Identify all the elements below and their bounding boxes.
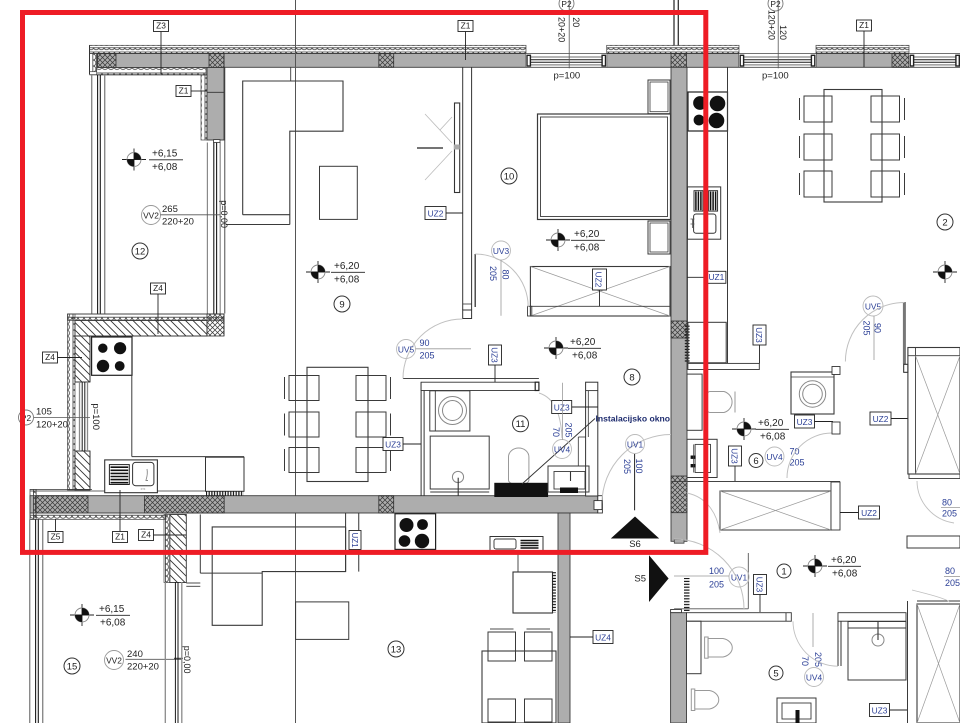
svg-text:p=100: p=100 — [762, 71, 789, 82]
svg-text:P2: P2 — [770, 0, 781, 9]
svg-text:13: 13 — [391, 644, 402, 655]
svg-text:120: 120 — [778, 25, 788, 40]
svg-text:220+20: 220+20 — [162, 217, 194, 228]
svg-text:UV3: UV3 — [493, 246, 510, 256]
svg-text:205: 205 — [563, 422, 573, 437]
svg-text:Z1: Z1 — [179, 85, 189, 95]
svg-text:20: 20 — [571, 17, 581, 27]
svg-text:205: 205 — [862, 320, 872, 335]
svg-text:+6,15: +6,15 — [99, 604, 125, 615]
svg-text:UZ1: UZ1 — [350, 532, 359, 548]
svg-text:UZ3: UZ3 — [754, 327, 763, 343]
svg-text:5: 5 — [773, 668, 778, 679]
svg-text:6: 6 — [753, 456, 758, 467]
svg-text:UZ3: UZ3 — [872, 705, 888, 715]
svg-text:120+20: 120+20 — [767, 10, 777, 40]
svg-text:1: 1 — [781, 566, 786, 577]
svg-text:+6,20: +6,20 — [570, 337, 596, 348]
svg-text:UZ3: UZ3 — [554, 402, 570, 412]
svg-text:UZ3: UZ3 — [797, 417, 813, 427]
svg-text:90: 90 — [420, 338, 430, 348]
svg-text:205: 205 — [709, 580, 724, 590]
svg-text:100: 100 — [634, 458, 644, 473]
svg-text:205: 205 — [420, 351, 435, 361]
svg-text:UZ2: UZ2 — [428, 208, 444, 218]
svg-text:Z4: Z4 — [45, 352, 55, 362]
svg-text:º°º: º°º — [141, 487, 146, 492]
svg-text:10: 10 — [504, 171, 515, 182]
svg-text:Instalacijsko okno: Instalacijsko okno — [596, 414, 671, 424]
svg-text:80: 80 — [501, 269, 511, 279]
svg-text:UZ3: UZ3 — [490, 347, 499, 363]
svg-text:VV2: VV2 — [106, 655, 122, 665]
svg-text:11: 11 — [516, 419, 526, 430]
svg-text:Z1: Z1 — [115, 531, 125, 541]
svg-text:+6,08: +6,08 — [334, 275, 360, 286]
svg-text:265: 265 — [162, 204, 178, 215]
svg-text:205: 205 — [942, 509, 957, 519]
svg-text:+6,08: +6,08 — [572, 351, 598, 362]
svg-text:Z4: Z4 — [141, 529, 151, 539]
svg-text:240: 240 — [127, 649, 143, 660]
svg-text:UZ1: UZ1 — [708, 272, 724, 282]
svg-text:70: 70 — [800, 656, 810, 666]
svg-text:205: 205 — [945, 578, 960, 588]
svg-text:UV5: UV5 — [398, 344, 415, 354]
svg-text:9: 9 — [339, 299, 344, 310]
svg-text:+6,20: +6,20 — [831, 555, 857, 566]
svg-text:UZ3: UZ3 — [730, 448, 739, 464]
svg-text:Z1: Z1 — [859, 20, 869, 30]
svg-text:205: 205 — [488, 266, 498, 281]
svg-text:p=100: p=100 — [90, 403, 101, 430]
svg-text:P2: P2 — [561, 0, 572, 9]
svg-text:Z4: Z4 — [153, 283, 163, 293]
svg-text:UV4: UV4 — [766, 452, 783, 462]
svg-text:205: 205 — [622, 459, 632, 474]
svg-text:UV5: UV5 — [865, 301, 882, 311]
svg-text:100: 100 — [709, 566, 724, 576]
svg-text:+6,08: +6,08 — [760, 432, 786, 443]
svg-text:+6,20: +6,20 — [334, 261, 360, 272]
svg-text:+6,08: +6,08 — [152, 162, 178, 173]
svg-text:UZ3: UZ3 — [385, 439, 401, 449]
svg-text:205: 205 — [790, 458, 805, 468]
svg-text:S5: S5 — [634, 574, 646, 585]
svg-text:2: 2 — [942, 217, 947, 228]
svg-text:Z1: Z1 — [461, 20, 471, 30]
svg-text:UV1: UV1 — [627, 439, 644, 449]
svg-text:+6,15: +6,15 — [152, 149, 178, 160]
svg-text:UZ2: UZ2 — [861, 508, 877, 518]
svg-text:+6,08: +6,08 — [574, 243, 600, 254]
svg-text:p=0,00: p=0,00 — [219, 200, 229, 228]
svg-text:20+20: 20+20 — [557, 17, 567, 42]
svg-text:UV1: UV1 — [731, 572, 748, 582]
svg-text:+6,20: +6,20 — [574, 229, 600, 240]
svg-text:UZ3: UZ3 — [755, 577, 764, 593]
svg-text:UZ2: UZ2 — [873, 414, 889, 424]
svg-text:p=0,00: p=0,00 — [182, 646, 192, 674]
svg-text:120+20: 120+20 — [36, 420, 68, 431]
svg-text:+6,08: +6,08 — [832, 569, 858, 580]
svg-text:Z5: Z5 — [51, 531, 61, 541]
svg-text:8: 8 — [629, 372, 634, 383]
svg-text:Z3: Z3 — [156, 20, 166, 30]
svg-text:12: 12 — [135, 246, 146, 257]
svg-text:S6: S6 — [629, 539, 641, 550]
svg-text:220+20: 220+20 — [127, 662, 159, 673]
svg-text:+6,20: +6,20 — [758, 418, 784, 429]
svg-text:15: 15 — [67, 661, 78, 672]
svg-text:80: 80 — [945, 566, 955, 576]
svg-text:+6,08: +6,08 — [100, 618, 126, 629]
svg-text:70: 70 — [551, 427, 561, 437]
svg-text:UV4: UV4 — [806, 672, 823, 682]
svg-text:105: 105 — [36, 407, 52, 418]
svg-text:80: 80 — [942, 498, 952, 508]
svg-text:UZ2: UZ2 — [594, 272, 604, 288]
svg-text:p=100: p=100 — [554, 71, 581, 82]
svg-text:UV4: UV4 — [554, 444, 571, 454]
svg-text:VV2: VV2 — [143, 210, 159, 220]
svg-text:UZ4: UZ4 — [595, 632, 611, 642]
